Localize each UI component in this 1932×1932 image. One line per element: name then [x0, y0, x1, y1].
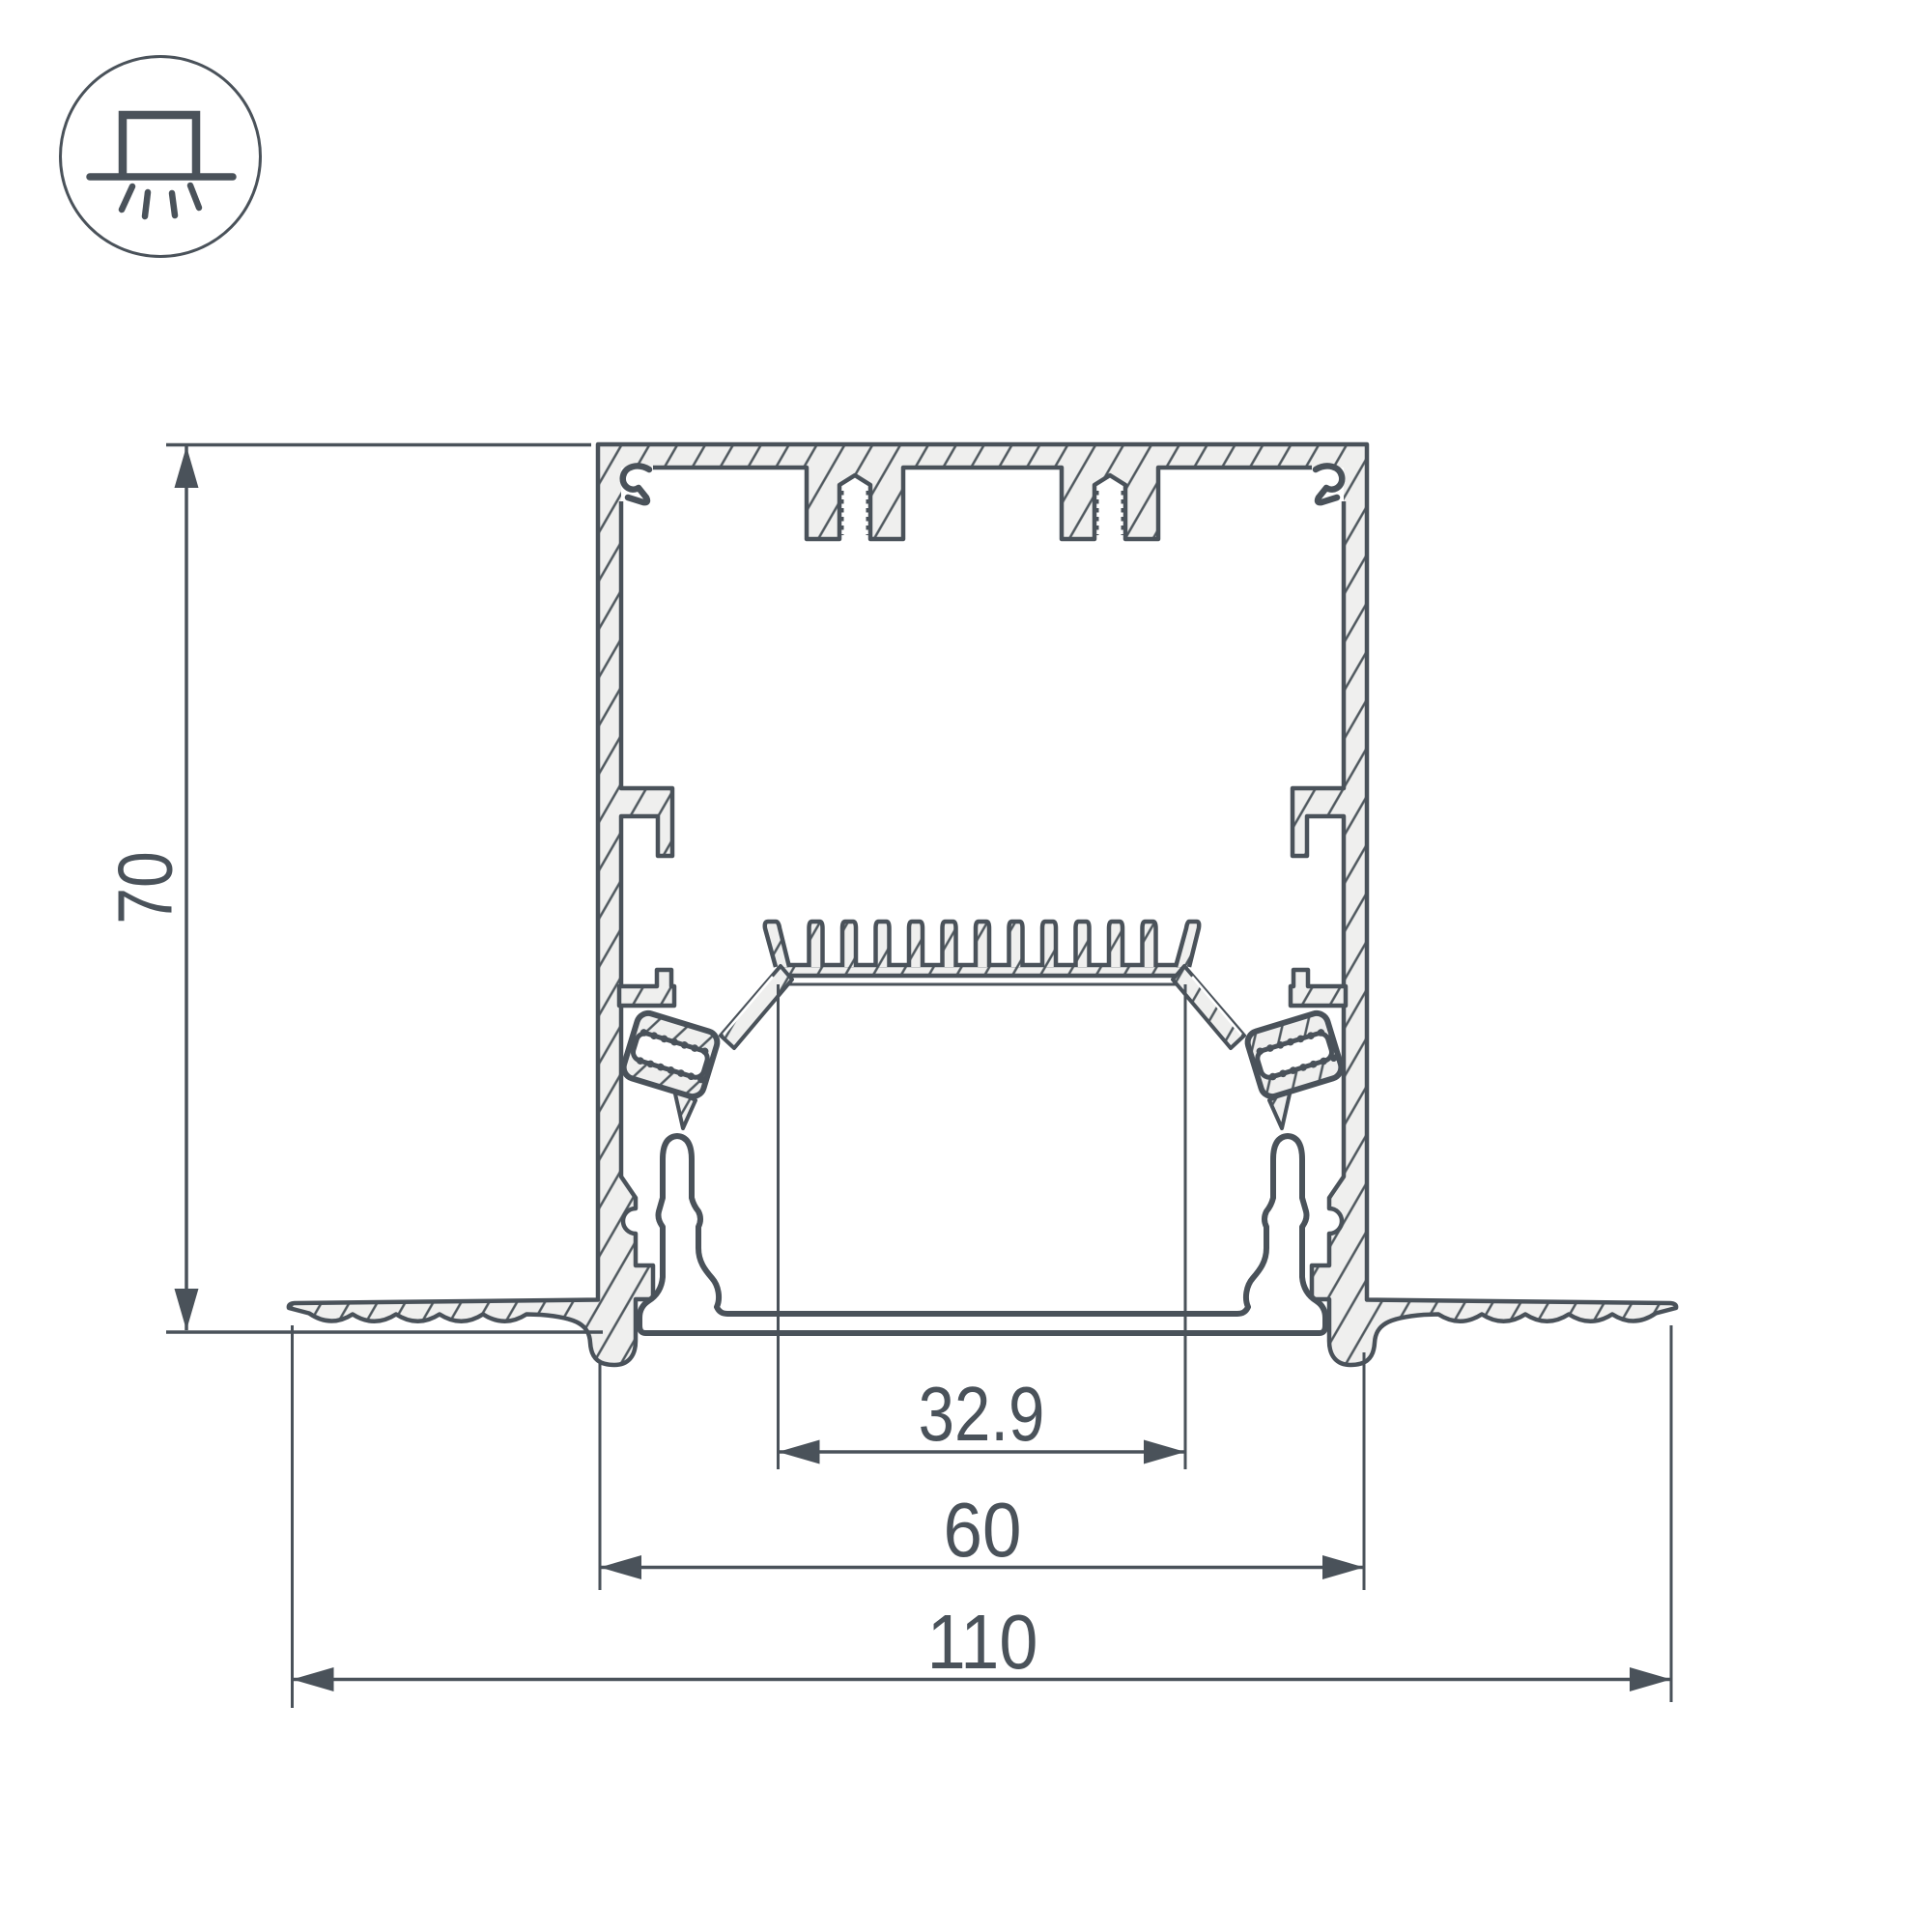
svg-text:110: 110 [927, 1600, 1038, 1686]
svg-text:70: 70 [101, 851, 187, 924]
svg-text:60: 60 [944, 1488, 1022, 1574]
svg-text:32.9: 32.9 [919, 1370, 1045, 1457]
